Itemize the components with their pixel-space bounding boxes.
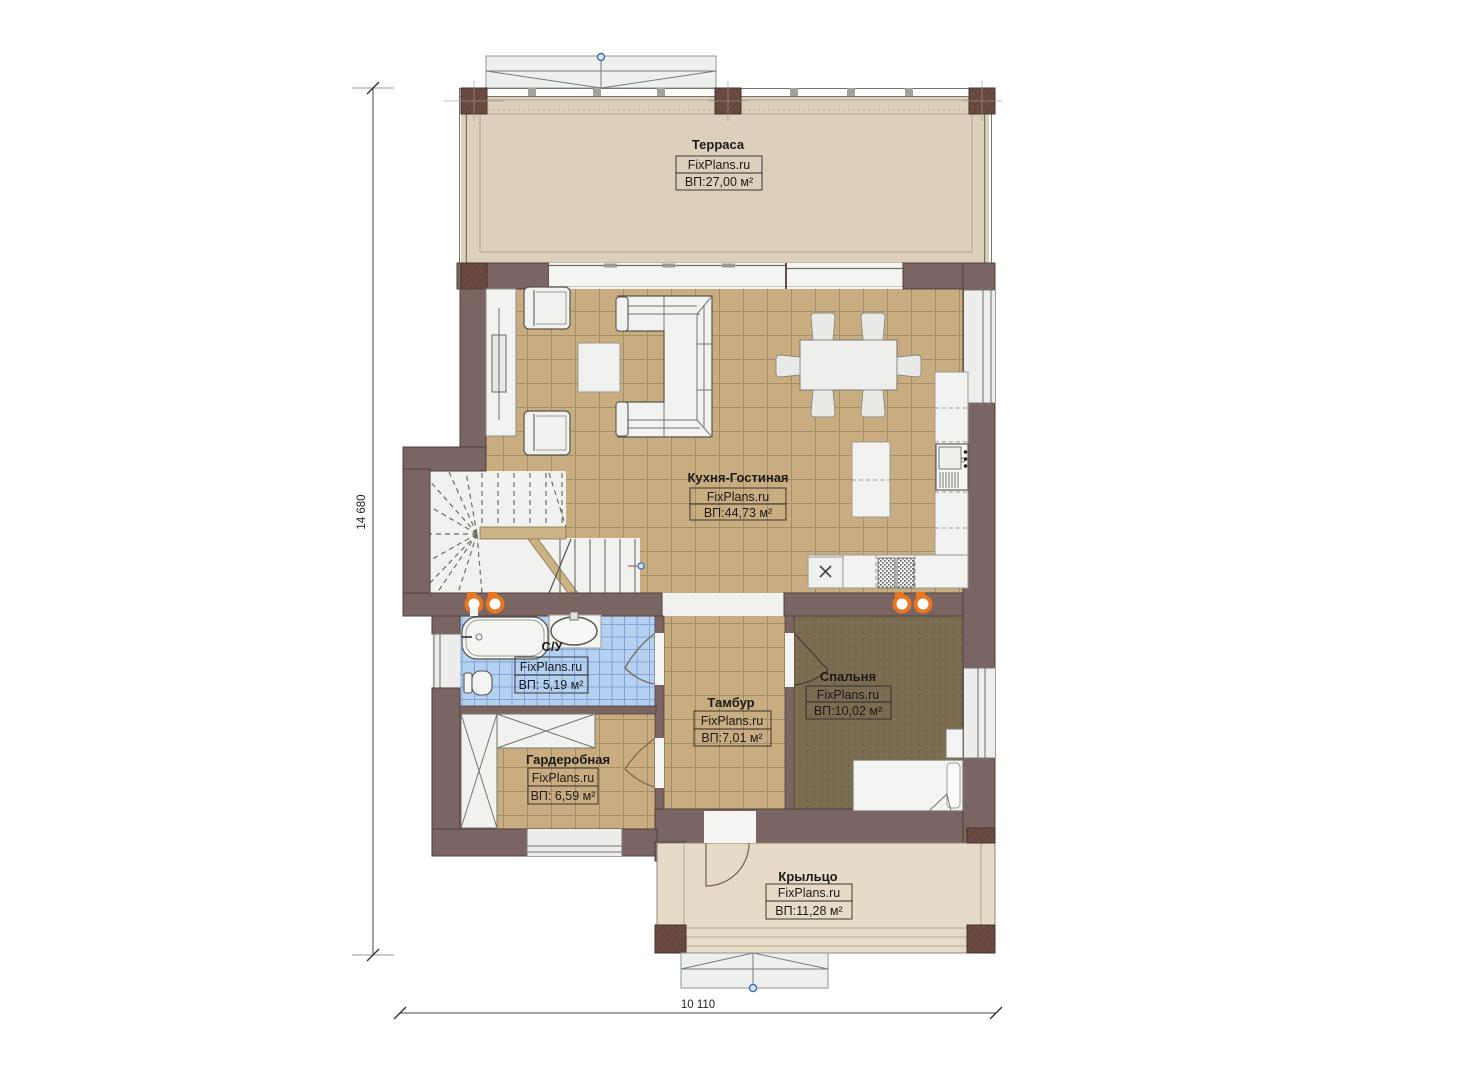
- svg-text:FixPlans.ru: FixPlans.ru: [778, 886, 841, 900]
- svg-text:ВП:11,28 м²: ВП:11,28 м²: [775, 904, 842, 918]
- svg-text:14 680: 14 680: [356, 494, 368, 529]
- svg-text:Кухня-Гостиная: Кухня-Гостиная: [687, 470, 788, 485]
- svg-text:ВП:10,02 м²: ВП:10,02 м²: [814, 704, 882, 718]
- svg-text:FixPlans.ru: FixPlans.ru: [707, 490, 770, 504]
- svg-text:ВП: 5,19 м²: ВП: 5,19 м²: [519, 678, 584, 692]
- svg-text:Гардеробная: Гардеробная: [526, 752, 610, 767]
- svg-text:ВП: 6,59 м²: ВП: 6,59 м²: [531, 789, 596, 803]
- svg-text:FixPlans.ru: FixPlans.ru: [532, 771, 595, 785]
- svg-text:FixPlans.ru: FixPlans.ru: [817, 688, 880, 702]
- svg-text:ВП:27,00 м²: ВП:27,00 м²: [685, 175, 753, 189]
- svg-text:FixPlans.ru: FixPlans.ru: [701, 714, 764, 728]
- svg-text:Терраса: Терраса: [692, 137, 745, 152]
- svg-text:Спальня: Спальня: [820, 669, 876, 684]
- svg-text:10 110: 10 110: [681, 999, 715, 1011]
- svg-text:ВП:7,01 м²: ВП:7,01 м²: [701, 731, 762, 745]
- svg-text:ВП:44,73 м²: ВП:44,73 м²: [704, 506, 772, 520]
- svg-text:FixPlans.ru: FixPlans.ru: [520, 660, 583, 674]
- svg-text:FixPlans.ru: FixPlans.ru: [688, 158, 751, 172]
- svg-text:С/У: С/У: [541, 639, 563, 654]
- svg-text:Крыльцо: Крыльцо: [778, 869, 837, 884]
- svg-text:Тамбур: Тамбур: [707, 695, 754, 710]
